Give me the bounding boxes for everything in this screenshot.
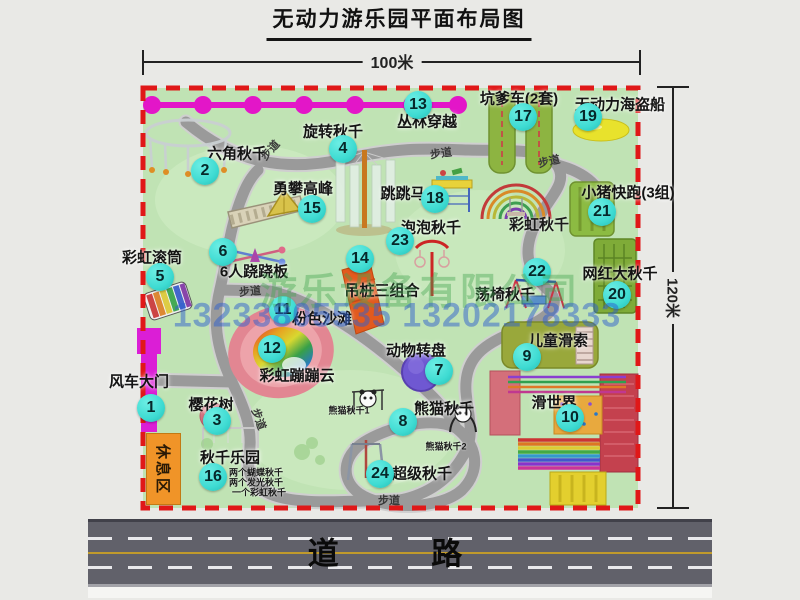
attraction-badge-19: 19 bbox=[574, 103, 602, 131]
walkway-label: 步道 bbox=[238, 282, 261, 300]
attraction-badge-11: 11 bbox=[269, 296, 297, 324]
attraction-badge-2: 2 bbox=[191, 157, 219, 185]
attraction-badge-17: 17 bbox=[509, 103, 537, 131]
attraction-badge-9: 9 bbox=[513, 343, 541, 371]
road: 道 路 bbox=[88, 519, 712, 587]
attraction-label-14: 吊桩三组合 bbox=[344, 280, 419, 301]
attraction-badge-15: 15 bbox=[298, 195, 326, 223]
attraction-badge-22: 22 bbox=[523, 258, 551, 286]
attraction-label-15: 勇攀高峰 bbox=[273, 178, 333, 199]
attraction-label-11: 粉色沙滩 bbox=[292, 308, 352, 329]
attraction-badge-3: 3 bbox=[203, 407, 231, 435]
attraction-badge-5: 5 bbox=[146, 263, 174, 291]
attraction-label-1: 风车大门 bbox=[109, 371, 169, 392]
attraction-label-12: 彩虹蹦蹦云 bbox=[259, 365, 334, 386]
walkway-label: 步道 bbox=[429, 144, 453, 163]
attraction-badge-7: 7 bbox=[425, 357, 453, 385]
attraction-badge-18: 18 bbox=[421, 185, 449, 213]
attraction-badge-13: 13 bbox=[404, 91, 432, 119]
annotation-label: 一个彩虹秋千 bbox=[232, 486, 286, 499]
rest-area-label: 休息区 bbox=[153, 443, 174, 494]
road-shoulder bbox=[88, 587, 712, 598]
height-dimension-label: 120米 bbox=[663, 272, 684, 324]
walkway-label: 步道 bbox=[378, 492, 400, 508]
attraction-badge-16: 16 bbox=[199, 463, 227, 491]
annotation-label: 熊猫秋千2 bbox=[425, 440, 466, 453]
road-label: 道 路 bbox=[308, 529, 493, 574]
attraction-label-24: 超级秋千 bbox=[392, 463, 452, 484]
attraction-badge-14: 14 bbox=[346, 245, 374, 273]
attraction-badge-8: 8 bbox=[389, 408, 417, 436]
annotation-label: 熊猫秋千1 bbox=[328, 404, 369, 417]
park-layout-page: 无动力游乐园平面布局图 100米 bbox=[0, 0, 800, 600]
annotation-label: 彩虹秋千 bbox=[509, 214, 569, 235]
attraction-label-22: 荡椅秋千 bbox=[475, 284, 535, 305]
attraction-badge-24: 24 bbox=[366, 460, 394, 488]
attraction-badge-23: 23 bbox=[386, 227, 414, 255]
page-title: 无动力游乐园平面布局图 bbox=[267, 3, 532, 41]
attraction-label-18: 跳跳马 bbox=[380, 183, 425, 204]
rest-area: 休息区 bbox=[146, 433, 181, 505]
attraction-badge-1: 1 bbox=[137, 394, 165, 422]
attraction-label-8: 熊猫秋千 bbox=[414, 398, 474, 419]
attraction-badge-4: 4 bbox=[329, 135, 357, 163]
attraction-badge-10: 10 bbox=[556, 404, 584, 432]
width-dimension-label: 100米 bbox=[363, 49, 422, 73]
attraction-badge-12: 12 bbox=[258, 335, 286, 363]
attraction-badge-20: 20 bbox=[603, 281, 631, 309]
attraction-badge-6: 6 bbox=[209, 238, 237, 266]
attraction-badge-21: 21 bbox=[588, 198, 616, 226]
